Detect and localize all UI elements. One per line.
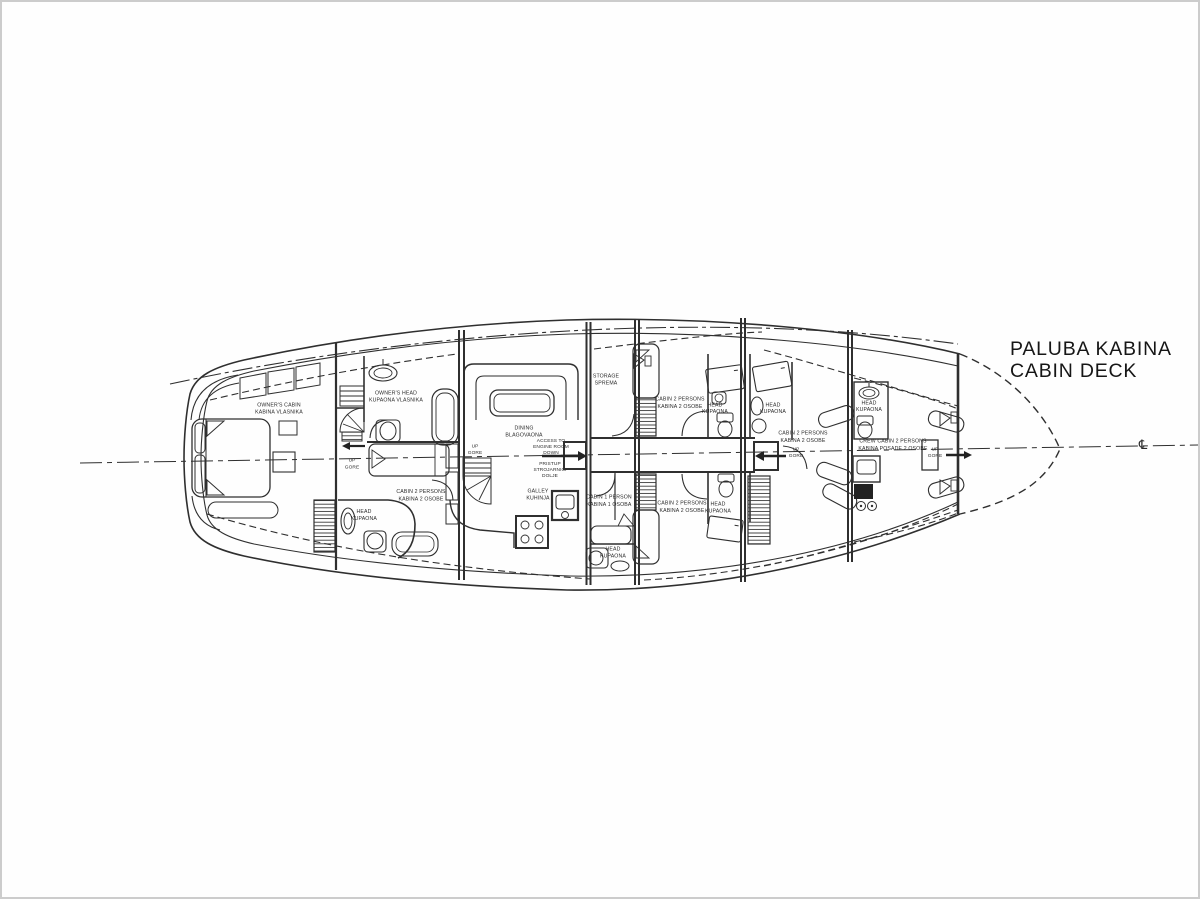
up-bow-label-hr: GORE: [928, 453, 943, 459]
head-port-label-hr: KUPAONA: [351, 516, 377, 522]
cabin2-fwd-label-hr: KABINA 2 OSOBE: [780, 438, 825, 444]
stern-staircase: [340, 386, 365, 450]
berth: [820, 481, 859, 511]
toilet: [718, 421, 732, 437]
port-head-fixtures: [314, 500, 386, 552]
berth: [369, 444, 449, 476]
head-upper1-label-hr: KUPAONA: [702, 409, 728, 415]
cabin2-upper-label-hr: KABINA 2 OSOBE: [657, 404, 702, 410]
head-lower-label-hr: KUPAONA: [705, 509, 731, 515]
single-cabin-furniture: [586, 514, 634, 571]
door-swing: [612, 414, 634, 436]
engine-access-label-hr-3: DOLJE: [542, 473, 558, 479]
guest-cabin-furniture: [748, 404, 859, 544]
wardrobe: [296, 363, 320, 389]
head-port-label: HEAD: [356, 509, 371, 515]
stern-up-arrow: [342, 442, 365, 450]
scanned-deck-plan-page: OWNER'S CABIN KABINA VLASNIKA OWNER'S HE…: [0, 0, 1200, 899]
sheer-line-dashdot: [170, 327, 958, 384]
dining-label: DINING: [514, 426, 533, 432]
stairway-down: [748, 476, 770, 544]
storage-label: STORAGE: [593, 374, 620, 380]
galley-staircase: [463, 458, 491, 504]
berth: [927, 475, 966, 499]
up-stern-label: UP: [349, 458, 356, 464]
head-upper2-label: HEAD: [765, 403, 780, 409]
up-fwd-label-hr: GORE: [789, 453, 804, 459]
washbasin: [611, 561, 629, 571]
cabin1-label-hr: KABINA 1 OSOBA: [586, 502, 631, 508]
door-swing: [596, 474, 615, 496]
cabin-deck-plan-drawing: OWNER'S CABIN KABINA VLASNIKA OWNER'S HE…: [2, 2, 1200, 899]
cabin2-fwd-label: CABIN 2 PERSONS: [778, 431, 828, 437]
galley-fixtures: [450, 491, 578, 548]
owners-head-label-hr: KUPAONA VLASNIKA: [369, 398, 423, 404]
berth: [591, 526, 631, 544]
skylight-hatch: [706, 365, 745, 394]
up-dining-label-hr: GORE: [468, 450, 483, 456]
door-swing: [682, 474, 707, 499]
dining-label-hr: BLAGOVAONA: [505, 433, 543, 439]
berth-ladder: [636, 398, 656, 436]
stern-bench: [208, 502, 278, 518]
crew-stove: [854, 484, 873, 499]
head-upper1-label: HEAD: [707, 403, 722, 409]
galley-label: GALLEY: [527, 489, 548, 495]
locker: [446, 444, 458, 468]
dining-furniture: [446, 364, 578, 524]
toilet: [719, 481, 733, 497]
toilet: [752, 419, 766, 433]
storage-label-hr: SPREMA: [595, 381, 618, 387]
up-dining-label: UP: [472, 444, 479, 450]
owners-head-label: OWNER'S HEAD: [375, 391, 417, 397]
wardrobe: [268, 368, 294, 394]
skylight-hatch: [707, 516, 744, 543]
head-single-label-hr: KUPAONA: [600, 554, 626, 560]
owners-cabin-label-hr: KABINA VLASNIKA: [255, 410, 303, 416]
head-crew-label-hr: KUPAONA: [856, 407, 882, 413]
engine-access-label-1: ACCESS TO: [537, 438, 566, 444]
head-single-label: HEAD: [605, 547, 620, 553]
washbasin: [859, 387, 879, 399]
cabin2-lower-label: CABIN 2 PERSONS: [657, 501, 707, 507]
owners-cabin-label: OWNER'S CABIN: [257, 403, 301, 409]
berth: [633, 510, 659, 564]
locker: [446, 504, 458, 524]
double-bed: [192, 419, 270, 497]
up-stern-label-hr: GORE: [345, 465, 360, 471]
up-fwd-label: UP: [793, 447, 800, 453]
cabin2-port-label: CABIN 2 PERSONS: [396, 489, 446, 495]
head-upper2-label-hr: KUPAONA: [760, 409, 786, 415]
title-secondary: CABIN DECK: [1010, 360, 1137, 382]
stove: [516, 516, 548, 548]
head-lower-label: HEAD: [710, 502, 725, 508]
bedside-cabinet: [279, 421, 297, 435]
galley-label-hr: KUHINJA: [526, 496, 550, 502]
crew-cabin-label: CREW CABIN 2 PERSONS: [859, 439, 927, 445]
toilet-tank: [857, 416, 873, 425]
engine-access-label-hr-1: PRISTUP: [539, 461, 561, 467]
engine-access-label-hr-2: STROJARNICI: [533, 467, 566, 473]
skylight-hatch: [752, 361, 792, 392]
cabin2-port-label-hr: KABINA 2 OSOBE: [398, 497, 443, 503]
wardrobe: [240, 373, 266, 399]
crew-cabin-label-hr: KABINA POSADE 2 OSOBE: [858, 446, 928, 452]
cabin2-upper-label: CABIN 2 PERSONS: [655, 397, 705, 403]
centerline-symbol: ℄: [1138, 437, 1148, 452]
toilet: [858, 422, 872, 438]
bed-foot-cabinet: [273, 452, 295, 472]
berth: [817, 404, 856, 429]
engine-access-label-3: DOWN: [543, 450, 559, 456]
title-primary: PALUBA KABINA: [1010, 338, 1172, 360]
washbasin: [369, 365, 397, 381]
cabin2-lower-label-hr: KABINA 2 OSOBE: [659, 508, 704, 514]
berth-ladder: [636, 474, 656, 510]
engine-access-label-2: ENGINE ROOM: [533, 444, 569, 450]
corridor: [542, 438, 786, 472]
drawing-title: PALUBA KABINA CABIN DECK: [1010, 338, 1172, 382]
berth: [633, 344, 659, 398]
starboard-cabin-lower-furniture: [633, 474, 734, 564]
starboard-cabin-upper-furniture: [633, 344, 766, 437]
up-bow-label: UP: [932, 447, 939, 453]
pillow: [195, 423, 205, 453]
owners-cabin-furniture: [191, 363, 320, 530]
head-crew-label: HEAD: [861, 401, 876, 407]
cabin1-label: CABIN 1 PERSON: [586, 495, 632, 501]
companionway-ladder: [314, 500, 335, 552]
